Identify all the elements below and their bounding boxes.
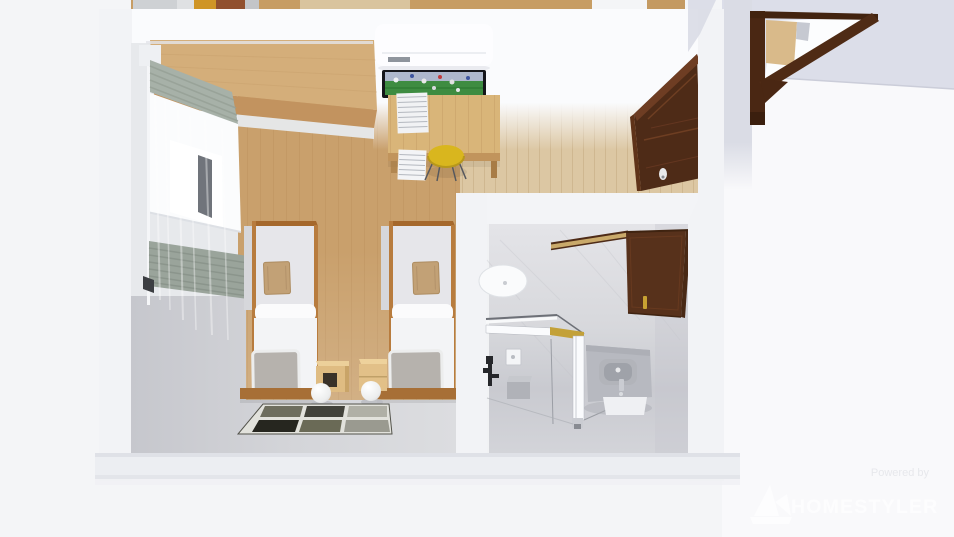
svg-text:Powered by: Powered by (871, 467, 930, 479)
svg-text:HOMESTYLER: HOMESTYLER (791, 496, 938, 518)
